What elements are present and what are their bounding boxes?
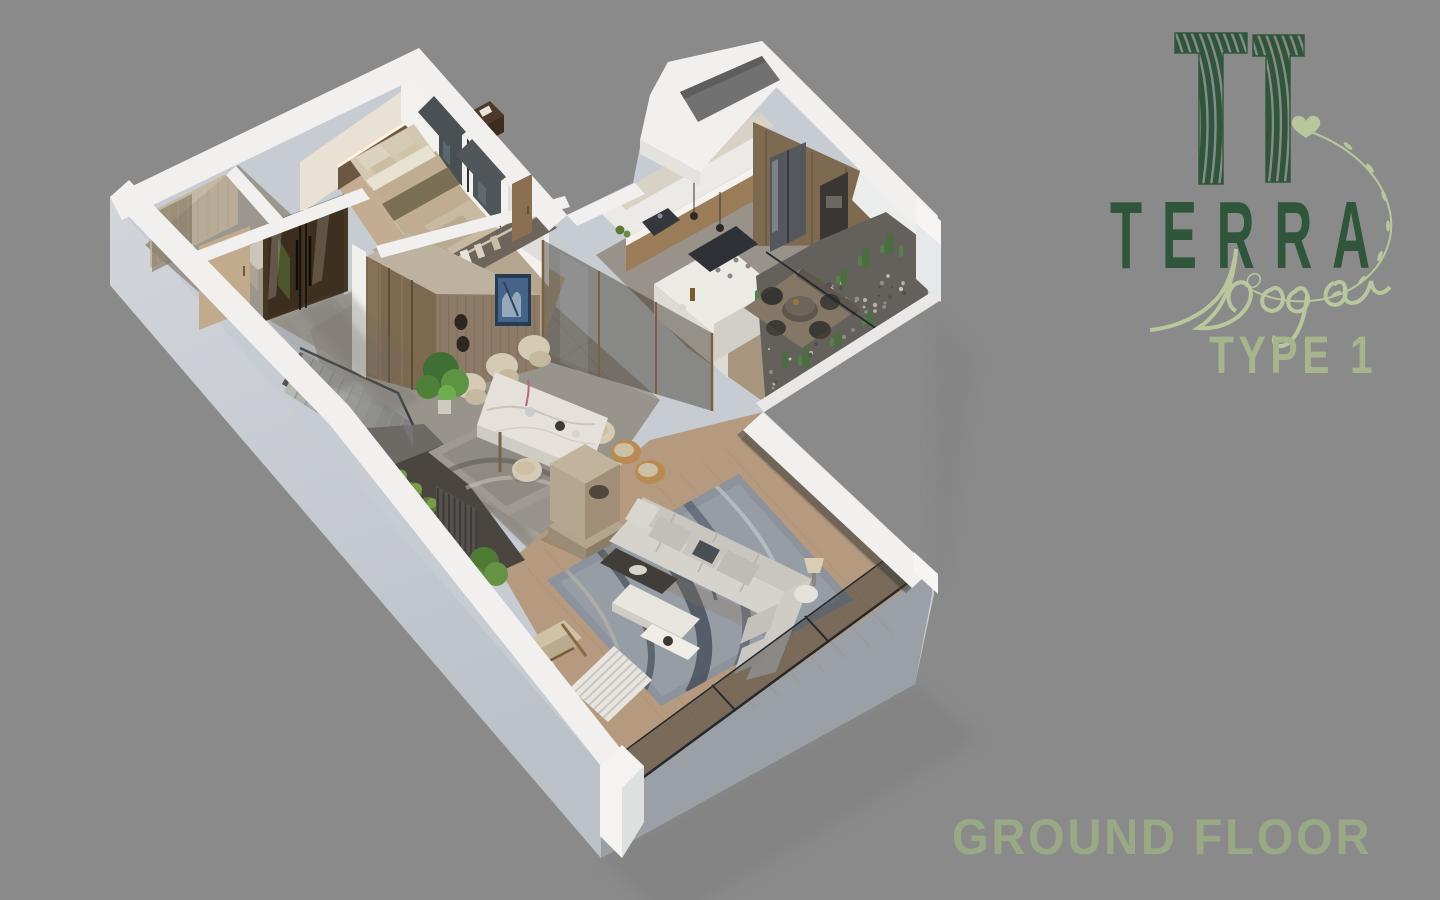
svg-text:GROUND FLOOR: GROUND FLOOR	[952, 810, 1372, 866]
svg-text:TYPE 1: TYPE 1	[1209, 326, 1377, 385]
svg-text:TERRA: TERRA	[1110, 182, 1390, 289]
